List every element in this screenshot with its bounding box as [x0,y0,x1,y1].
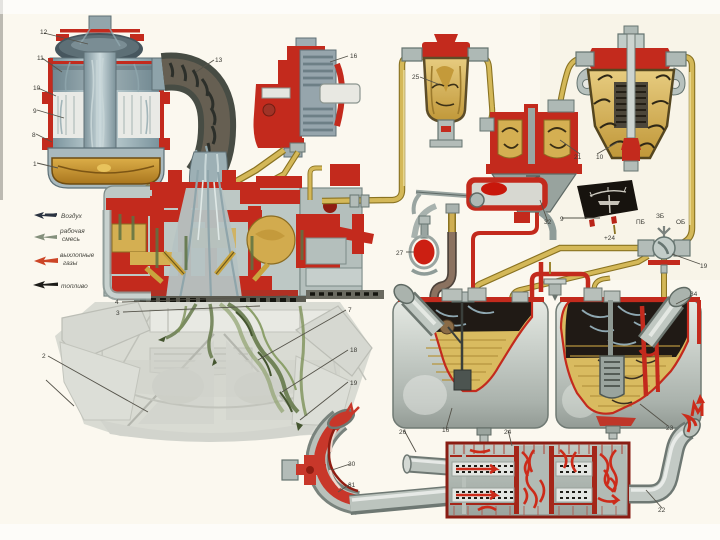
svg-text:32: 32 [544,219,552,226]
svg-text:27: 27 [396,250,404,257]
svg-text:16: 16 [350,53,358,60]
svg-text:21: 21 [574,154,582,161]
svg-text:19: 19 [700,263,708,270]
svg-text:31: 31 [348,482,356,489]
svg-text:30: 30 [348,461,356,468]
svg-text:18: 18 [350,347,358,354]
svg-text:13: 13 [215,57,223,64]
svg-text:+24: +24 [604,235,615,242]
svg-text:смесь: смесь [62,236,80,243]
svg-text:рабочая: рабочая [59,227,85,235]
svg-text:4: 4 [115,299,119,306]
svg-text:12: 12 [40,29,48,36]
svg-text:16: 16 [442,427,450,434]
svg-text:1: 1 [33,161,37,168]
svg-text:22: 22 [658,507,666,514]
svg-text:26: 26 [399,429,407,436]
svg-text:3: 3 [116,310,120,317]
svg-text:2: 2 [42,353,46,360]
svg-text:7: 7 [348,307,352,314]
svg-text:ЗБ: ЗБ [656,213,664,220]
svg-text:9: 9 [33,108,37,115]
svg-text:ПБ: ПБ [636,219,645,226]
svg-text:8: 8 [32,132,36,139]
svg-text:выхлопные: выхлопные [60,252,95,259]
svg-text:19: 19 [350,380,358,387]
svg-text:газы: газы [63,260,78,267]
svg-text:23: 23 [666,425,674,432]
svg-text:10: 10 [33,85,41,92]
svg-text:топливо: топливо [61,283,88,290]
svg-text:9: 9 [560,216,564,223]
svg-text:11: 11 [37,55,44,62]
svg-text:ОБ: ОБ [676,219,685,226]
svg-text:34: 34 [690,291,698,298]
svg-text:24: 24 [504,429,512,436]
svg-text:Воздух: Воздух [61,212,83,220]
svg-text:25: 25 [412,74,420,81]
svg-text:10: 10 [596,154,604,161]
